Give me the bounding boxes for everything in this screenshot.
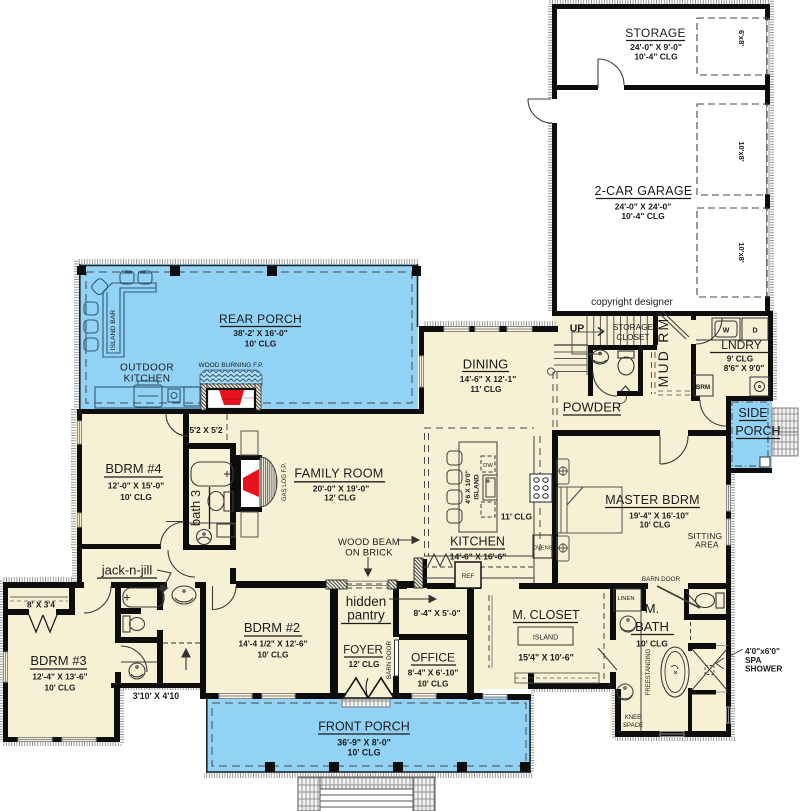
- svg-text:POWDER: POWDER: [563, 400, 622, 415]
- svg-text:10' CLG: 10' CLG: [245, 339, 277, 349]
- svg-text:BDRM #2: BDRM #2: [244, 620, 300, 635]
- svg-text:BARN DOOR: BARN DOOR: [386, 640, 393, 679]
- svg-text:FOYER: FOYER: [343, 645, 383, 657]
- svg-text:24'-0" X 24'-0": 24'-0" X 24'-0": [615, 202, 672, 212]
- svg-text:DW: DW: [483, 463, 493, 469]
- svg-text:REAR PORCH: REAR PORCH: [219, 312, 302, 326]
- svg-text:ISLAND: ISLAND: [533, 635, 558, 642]
- svg-text:36'-9" X 8'-0": 36'-9" X 8'-0": [337, 738, 391, 748]
- svg-text:KITCHEN: KITCHEN: [124, 374, 171, 385]
- svg-text:WOOD BEAM: WOOD BEAM: [338, 537, 400, 548]
- svg-text:4'6 X 10'0": 4'6 X 10'0": [465, 470, 472, 504]
- svg-text:ISLAND: ISLAND: [474, 474, 481, 499]
- svg-text:ON BRICK: ON BRICK: [345, 548, 393, 559]
- svg-text:SIDE: SIDE: [738, 406, 767, 420]
- svg-text:WOOD BURNING F.P.: WOOD BURNING F.P.: [199, 362, 264, 369]
- svg-text:10' CLG: 10' CLG: [348, 748, 381, 758]
- svg-text:12' CLG: 12' CLG: [348, 659, 379, 669]
- svg-text:11' CLG: 11' CLG: [501, 512, 533, 522]
- svg-text:12' CLG: 12' CLG: [324, 493, 356, 503]
- svg-text:11' CLG: 11' CLG: [470, 384, 502, 394]
- svg-text:BATH: BATH: [635, 619, 669, 634]
- svg-text:10'-4" CLG: 10'-4" CLG: [634, 52, 678, 62]
- svg-text:12'-4" X 13'-6": 12'-4" X 13'-6": [32, 672, 87, 682]
- svg-text:MASTER BDRM: MASTER BDRM: [605, 493, 700, 507]
- svg-text:STORAGE: STORAGE: [625, 26, 686, 40]
- svg-text:FAMILY ROOM: FAMILY ROOM: [294, 467, 383, 481]
- svg-text:15'4" X 10'-6": 15'4" X 10'-6": [518, 653, 574, 663]
- svg-text:14'-6" X 12'-1": 14'-6" X 12'-1": [460, 374, 517, 384]
- svg-text:3'10' X 4'10: 3'10' X 4'10: [133, 691, 179, 701]
- svg-text:pantry: pantry: [347, 608, 385, 623]
- svg-text:KITCHEN: KITCHEN: [450, 535, 505, 549]
- svg-text:10' CLG: 10' CLG: [639, 520, 670, 530]
- svg-text:ISLAND BAR: ISLAND BAR: [110, 310, 117, 351]
- svg-text:38'-2' X 16'-0": 38'-2' X 16'-0": [233, 328, 288, 338]
- svg-text:5'2 X 5'2: 5'2 X 5'2: [189, 425, 223, 435]
- svg-text:14'-6" X 16'-6": 14'-6" X 16'-6": [450, 552, 507, 562]
- svg-text:GAS LOG F.P.: GAS LOG F.P.: [282, 463, 288, 502]
- svg-text:KNEE: KNEE: [625, 715, 641, 721]
- svg-text:OUTDOOR: OUTDOOR: [120, 363, 174, 374]
- svg-text:OVENS: OVENS: [532, 546, 552, 552]
- svg-text:BDRM #3: BDRM #3: [30, 653, 86, 668]
- svg-text:9' CLG: 9' CLG: [727, 354, 753, 364]
- svg-text:8' X 3'4: 8' X 3'4: [27, 600, 55, 610]
- svg-text:24'-0" X 9'-0": 24'-0" X 9'-0": [630, 42, 682, 52]
- svg-text:10' CLG: 10' CLG: [417, 679, 448, 689]
- svg-text:OFFICE: OFFICE: [411, 651, 455, 665]
- svg-text:REF: REF: [462, 573, 475, 580]
- svg-text:8'-4" X 6'-10": 8'-4" X 6'-10": [408, 668, 459, 678]
- svg-text:LNDRY: LNDRY: [721, 338, 761, 352]
- svg-text:M.: M.: [645, 601, 659, 616]
- svg-text:CLOSET: CLOSET: [616, 332, 649, 342]
- svg-text:10' CLG: 10' CLG: [120, 492, 152, 502]
- svg-text:MUD RM: MUD RM: [655, 317, 671, 388]
- svg-text:BARN DOOR: BARN DOOR: [642, 576, 681, 583]
- svg-text:10'x8': 10'x8': [737, 141, 746, 161]
- svg-text:bath 3: bath 3: [188, 490, 203, 526]
- svg-text:10' CLG: 10' CLG: [257, 650, 288, 660]
- svg-text:AREA: AREA: [695, 540, 719, 550]
- svg-text:2-CAR GARAGE: 2-CAR GARAGE: [594, 184, 692, 198]
- svg-text:jack-n-jill: jack-n-jill: [101, 563, 153, 578]
- svg-text:10' CLG: 10' CLG: [636, 639, 668, 649]
- svg-text:FRONT PORCH: FRONT PORCH: [318, 720, 409, 734]
- svg-text:8'-4" X 5'-0": 8'-4" X 5'-0": [413, 608, 460, 618]
- svg-text:DINING: DINING: [463, 357, 509, 372]
- svg-text:6'x8': 6'x8': [737, 30, 746, 46]
- svg-text:STORAGE: STORAGE: [613, 322, 654, 332]
- svg-text:UP: UP: [570, 323, 585, 335]
- svg-text:10'-4" CLG: 10'-4" CLG: [621, 211, 665, 221]
- svg-text:BRM: BRM: [696, 384, 710, 391]
- svg-text:W: W: [723, 328, 730, 335]
- svg-text:D: D: [752, 328, 757, 335]
- svg-text:SHOWER: SHOWER: [745, 664, 782, 674]
- svg-text:PORCH: PORCH: [735, 424, 780, 438]
- svg-text:FREESTANDING: FREESTANDING: [646, 648, 652, 695]
- svg-text:12'-0" X 15'-0": 12'-0" X 15'-0": [108, 481, 165, 491]
- svg-text:14'-4 1/2" X 12'-6": 14'-4 1/2" X 12'-6": [238, 639, 307, 649]
- svg-text:SPACE: SPACE: [623, 723, 643, 729]
- svg-text:8'6" X 9'0": 8'6" X 9'0": [724, 363, 764, 373]
- svg-text:10'x8': 10'x8': [737, 242, 746, 262]
- svg-text:10' CLG: 10' CLG: [44, 683, 75, 693]
- svg-text:BDRM #4: BDRM #4: [105, 461, 161, 476]
- svg-text:M. CLOSET: M. CLOSET: [512, 608, 580, 622]
- svg-text:LINEN: LINEN: [617, 596, 634, 602]
- svg-text:copyright designer: copyright designer: [591, 297, 673, 308]
